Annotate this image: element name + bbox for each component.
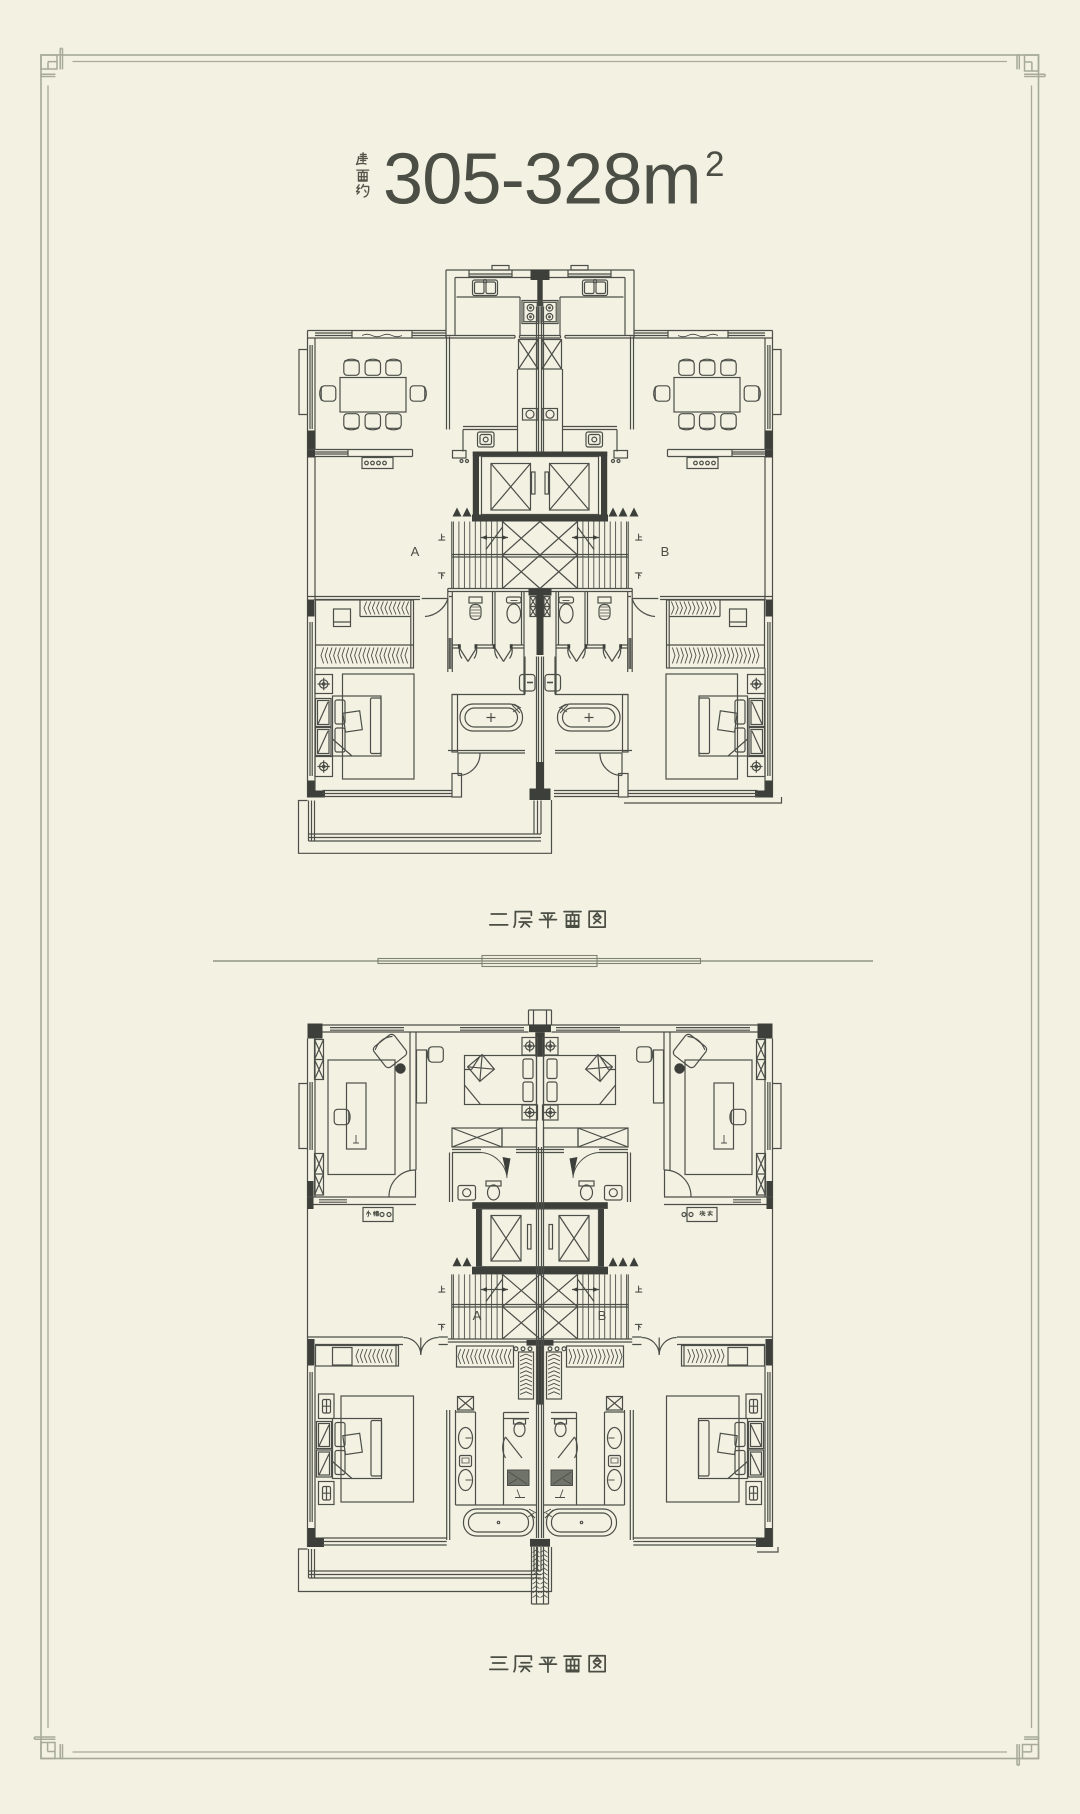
svg-text:2: 2 [705,145,724,184]
svg-text:A: A [411,544,420,559]
svg-text:B: B [661,544,670,559]
svg-text:A: A [473,1308,482,1323]
svg-text:B: B [598,1308,607,1323]
svg-text:305-328m: 305-328m [383,140,701,220]
